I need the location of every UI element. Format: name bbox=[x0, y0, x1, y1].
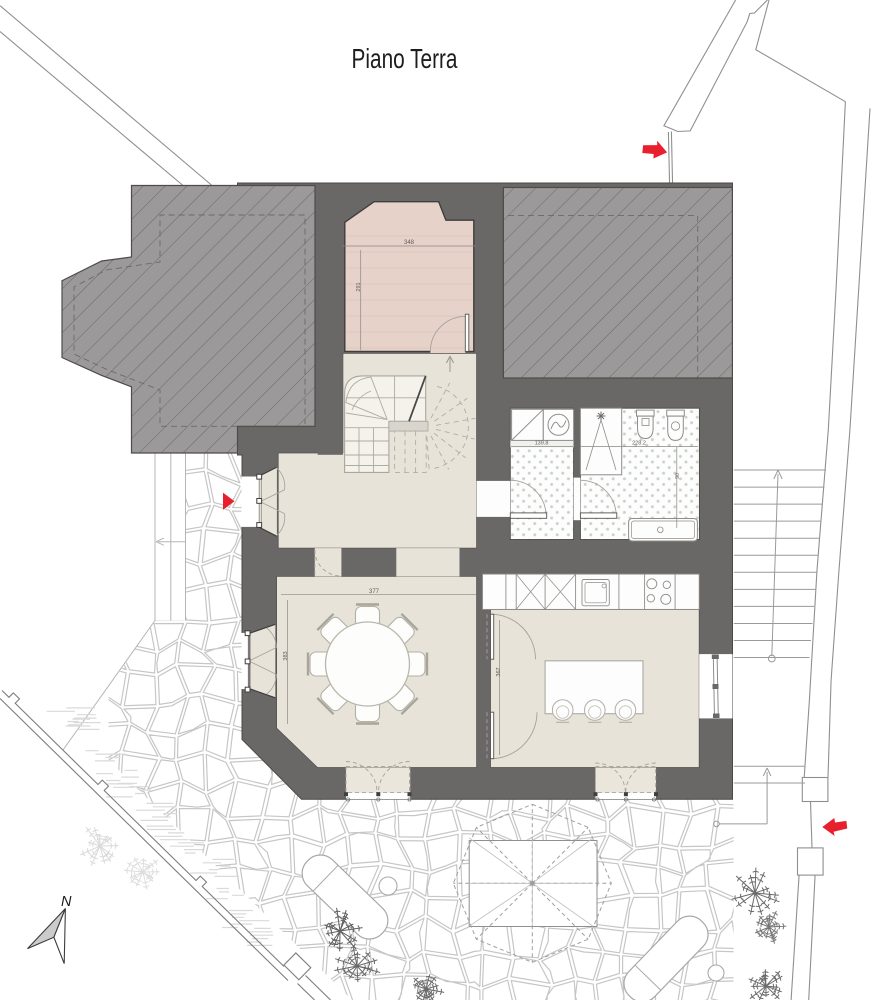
svg-text:228.2: 228.2 bbox=[632, 441, 646, 447]
svg-text:383: 383 bbox=[283, 651, 289, 660]
svg-text:377: 377 bbox=[369, 589, 380, 595]
svg-text:291: 291 bbox=[356, 282, 362, 291]
svg-text:Piano Terra: Piano Terra bbox=[352, 43, 459, 74]
svg-text:367: 367 bbox=[496, 667, 502, 676]
svg-text:348: 348 bbox=[404, 240, 415, 246]
svg-text:N: N bbox=[61, 894, 72, 910]
svg-text:139.8: 139.8 bbox=[535, 441, 549, 447]
svg-text:90: 90 bbox=[675, 473, 681, 479]
